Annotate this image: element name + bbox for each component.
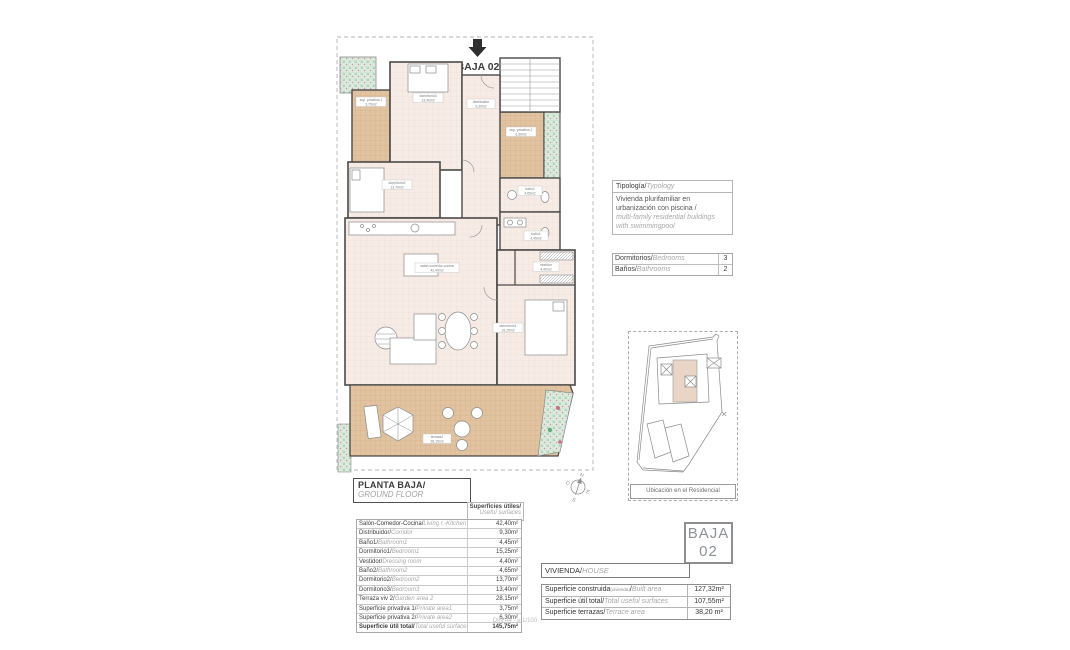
table-row: Vestidor/Dressing room4,40m²: [357, 558, 521, 567]
row-label-es: Superficie privativa 1/: [359, 606, 416, 612]
table-row: Dormitorio2/Bedroom213,70m²: [357, 576, 521, 585]
built-area-sub: (vivienda): [610, 587, 630, 592]
row-label-en: Living r.-Kitchen: [423, 521, 466, 527]
label-terraza2: terraza228,15m2: [423, 434, 451, 444]
typology-box: Tipología/Typology Vivienda plurifamilia…: [612, 180, 733, 235]
svg-text:E: E: [585, 489, 591, 496]
typology-line2: urbanización con piscina /: [616, 204, 729, 213]
row-value: 4,45m²: [467, 539, 521, 547]
row-value: 13,70m²: [467, 576, 521, 584]
svg-text:N: N: [579, 472, 585, 479]
row-label-es: Dormitorio2/: [359, 577, 392, 583]
table-row: Superficie privativa 1/Private area13,75…: [357, 605, 521, 614]
bedrooms-label-es: Dormitorios/: [615, 255, 653, 262]
bedrooms-bathrooms-table: Dormitorios/Bedrooms 3 Baños/Bathrooms 2: [612, 253, 733, 276]
row-label-en: Corridor: [391, 530, 413, 536]
typology-body: Vivienda plurifamiliar en urbanización c…: [613, 193, 732, 234]
label-dormitorio3: dormitorio313,40m2: [413, 93, 443, 103]
svg-text:4,65m2: 4,65m2: [524, 191, 535, 195]
row-value: 28,15m²: [467, 595, 521, 603]
bathrooms-count: 2: [718, 265, 732, 275]
row-value: 3,75m²: [467, 605, 521, 613]
table-row: Baño2/Bathroom24,65m²: [357, 567, 521, 576]
house-header: VIVIENDA/HOUSE: [541, 563, 690, 578]
table-row: Terraza viv 2/Garden area 228,15m²: [357, 595, 521, 604]
bathrooms-label-en: Bathrooms: [637, 266, 671, 273]
typology-header: Tipología/Typology: [613, 181, 732, 193]
site-map-drawing: [629, 332, 735, 482]
terrace-area-value: 38,20 m²: [687, 608, 730, 619]
row-label-en: Dressing room: [382, 559, 421, 565]
svg-text:28,15m2: 28,15m2: [430, 439, 443, 443]
useful-total-value: 107,55m²: [687, 597, 730, 608]
svg-text:4,45m2: 4,45m2: [530, 236, 541, 240]
useful-total-label-en: Total useful surfaces: [604, 598, 668, 605]
svg-text:15,25m2: 15,25m2: [501, 328, 514, 332]
table-row: Dormitorios/Bedrooms 3: [613, 254, 732, 265]
label-bano2: baño24,65m2: [518, 186, 542, 196]
common-staircase: [500, 58, 560, 112]
table-row: Distribuidor/Corridor9,30m²: [357, 529, 521, 538]
row-label-en: Private area1: [416, 606, 452, 612]
row-label-es: Vestidor/: [359, 559, 382, 565]
row-value: 4,65m²: [467, 567, 521, 575]
house-header-es: VIVIENDA/: [545, 566, 582, 575]
svg-text:4,40m2: 4,40m2: [540, 267, 551, 271]
table-row: Superficie útil total/Total useful surfa…: [542, 597, 730, 609]
useful-header-en: Useful surfaces: [468, 510, 521, 516]
row-label-es: Superficie privativa 2/: [359, 615, 416, 621]
floor-title-es: PLANTA BAJA/: [358, 480, 470, 490]
label-dormitorio1: dormitorio115,25m2: [493, 323, 523, 333]
table-row: Dormitorio1/Bedroom115,25m²: [357, 548, 521, 557]
row-label-en: Bathroom1: [378, 540, 407, 546]
site-location-map: Ubicación en el Residencial: [628, 331, 738, 501]
typology-line3: multi-family residential buildings: [616, 213, 729, 222]
row-label-en: Total useful surface: [415, 624, 467, 630]
table-row-total: Superficie útil total/Total useful surfa…: [357, 623, 521, 631]
plant-dot: [548, 428, 552, 432]
row-value: 15,25m²: [467, 548, 521, 556]
svg-text:13,40m2: 13,40m2: [421, 98, 434, 102]
unit-badge: BAJA 02: [684, 522, 733, 564]
row-label-es: Baño2/: [359, 568, 378, 574]
typology-header-en: Typology: [646, 183, 674, 190]
row-label-en: Bathroom2: [378, 568, 407, 574]
row-label-es: Baño1/: [359, 540, 378, 546]
flower-dot: [556, 406, 560, 410]
svg-text:6,30m2: 6,30m2: [515, 132, 526, 136]
unit-badge-line2: 02: [686, 543, 731, 560]
row-label-es: Dormitorio1/: [359, 549, 392, 555]
table-row: Dormitorio3/Bedroom313,40m²: [357, 586, 521, 595]
typology-line4: with swimmingpool: [616, 222, 729, 231]
table-row: Salón-Comedor-Cocina/Living r.-Kitchen42…: [357, 520, 521, 529]
flower-dot: [558, 440, 562, 444]
label-dormitorio2: dormitorio213,70m2: [382, 180, 412, 190]
wardrobe-top: [540, 252, 573, 260]
label-distribuidor: distribuidor9,30m2: [467, 99, 495, 109]
label-vestidor: vestidor4,40m2: [533, 262, 559, 272]
row-label-en: Private area2: [416, 615, 452, 621]
svg-text:3,75m2: 3,75m2: [365, 102, 376, 106]
entrance-arrow-icon: [469, 39, 487, 57]
planting-strip-left: [338, 424, 351, 472]
row-label-en: Garden area 2: [395, 596, 434, 602]
svg-text:42,40m2: 42,40m2: [430, 268, 443, 272]
row-label-es: Salón-Comedor-Cocina/: [359, 521, 423, 527]
label-bano1: baño14,45m2: [524, 231, 548, 241]
built-area-value: 127,32m²: [687, 585, 730, 596]
planting-strip-right: [544, 112, 560, 178]
row-value: 42,40m²: [467, 520, 521, 528]
row-label-en: Bedroom2: [392, 577, 420, 583]
svg-text:O: O: [565, 480, 571, 487]
built-area-label-es: Superficie construida: [545, 586, 610, 593]
row-label-es: Superficie útil total/: [359, 624, 415, 630]
terrace-area-label-es: Superficie terrazas/: [545, 609, 605, 616]
wardrobe-bottom: [540, 275, 573, 283]
room-sup-privativa-2: [498, 112, 544, 178]
scale-note: DIN A4 - e 1/100: [458, 618, 572, 624]
floor-plan-drawing: BAJA 02: [330, 30, 605, 515]
floor-title-en: GROUND FLOOR: [358, 490, 470, 499]
compass-rose-icon: N S E O: [560, 469, 595, 508]
svg-text:13,70m2: 13,70m2: [390, 185, 403, 189]
planting-area-topleft: [340, 57, 376, 93]
label-sup-privativa-2: sup. privativa 26,30m2: [506, 127, 536, 137]
table-row: Baño1/Bathroom14,45m²: [357, 539, 521, 548]
svg-text:S: S: [571, 497, 577, 504]
label-sup-privativa-1: sup. privativa 13,75m2: [356, 97, 386, 107]
row-label-es: Dormitorio3/: [359, 587, 392, 593]
svg-text:9,30m2: 9,30m2: [475, 104, 486, 108]
house-surfaces-table: Superficie construida(vivienda)/Built ar…: [541, 584, 731, 620]
row-label-es: Terraza viv 2/: [359, 596, 395, 602]
floor-title-box: PLANTA BAJA/ GROUND FLOOR: [353, 478, 471, 503]
typology-line1: Vivienda plurifamiliar en: [616, 195, 729, 204]
row-label-en: Bedroom1: [392, 549, 420, 555]
row-value: 9,30m²: [467, 529, 521, 537]
label-salon: salón-comedor-cocina42,40m2: [415, 263, 459, 273]
typology-header-es: Tipología/: [616, 183, 646, 190]
table-row: Superficie construida(vivienda)/Built ar…: [542, 585, 730, 597]
row-label-en: Bedroom3: [392, 587, 420, 593]
room-distribuidor: [462, 75, 500, 225]
plan-entrance-label: BAJA 02: [457, 61, 500, 73]
row-value: 145,75m²: [467, 623, 521, 631]
site-map-caption: Ubicación en el Residencial: [630, 484, 736, 499]
unit-badge-line1: BAJA: [686, 524, 731, 543]
bathrooms-label-es: Baños/: [615, 266, 637, 273]
row-value: 4,40m²: [467, 558, 521, 566]
row-value: 13,40m²: [467, 586, 521, 594]
terrace-area-label-en: Terrace area: [605, 609, 644, 616]
house-header-en: HOUSE: [582, 566, 609, 575]
bedrooms-count: 3: [718, 254, 732, 264]
useful-surfaces-table: Salón-Comedor-Cocina/Living r.-Kitchen42…: [356, 519, 522, 633]
bedrooms-label-en: Bedrooms: [653, 255, 685, 262]
table-row: Baños/Bathrooms 2: [613, 265, 732, 275]
row-label-es: Distribuidor/: [359, 530, 391, 536]
useful-total-label-es: Superficie útil total/: [545, 598, 604, 605]
built-area-label-en: Built area: [632, 586, 662, 593]
